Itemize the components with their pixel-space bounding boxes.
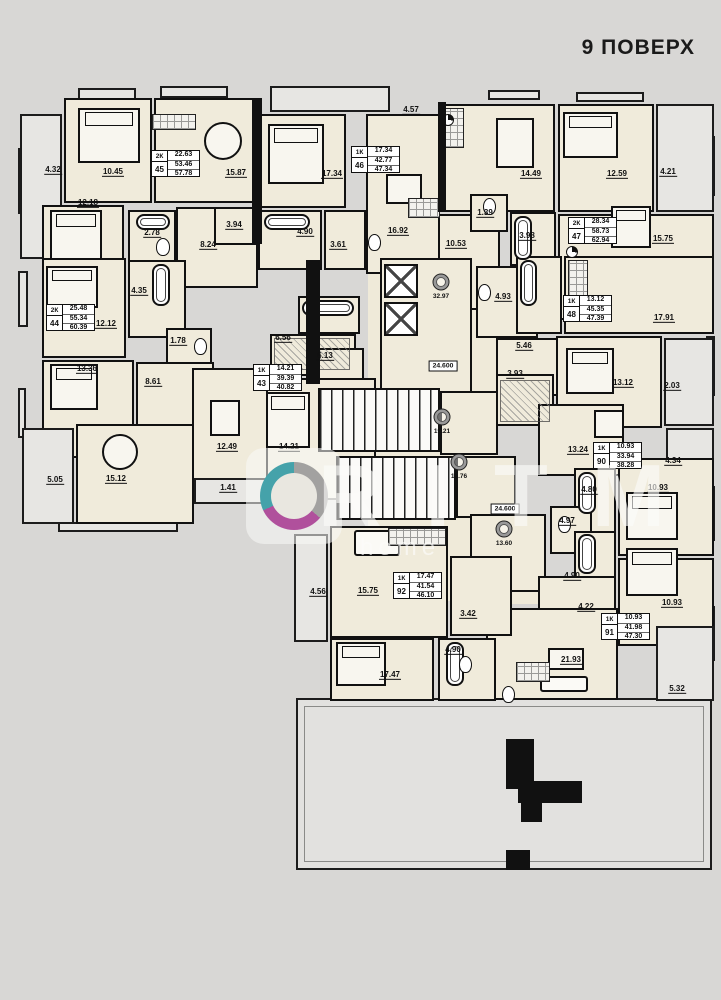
dimension-label: 17.91 [653, 314, 675, 323]
wc-icon [156, 238, 170, 256]
apartment-area-value: 38.28 [610, 462, 641, 471]
dimension-label: 4.22 [577, 603, 595, 612]
apartment-area-value: 53.46 [168, 161, 199, 171]
apartment-area-value: 13.12 [580, 296, 611, 306]
wc-icon [194, 338, 207, 355]
dimension-label: 4.97 [558, 517, 576, 526]
apartment-number: 47 [569, 229, 584, 243]
apartment-area-value: 10.93 [610, 443, 641, 453]
dimension-label: 8.24 [199, 241, 217, 250]
dimension-label: 2.78 [143, 229, 161, 238]
wc-icon [502, 686, 515, 703]
bed-icon [268, 124, 324, 184]
counter-icon [388, 528, 446, 546]
apartment-info-table-91: 1К9110.9341.9847.30 [601, 613, 650, 640]
dimension-label: 3.94 [225, 221, 243, 230]
wc-icon [368, 234, 381, 251]
wc-icon [459, 656, 472, 673]
apartment-area-value: 42.77 [368, 157, 399, 167]
dimension-label: 4.90 [444, 646, 462, 655]
dimension-label: 2.03 [663, 382, 681, 391]
apartment-area-value: 45.35 [580, 306, 611, 316]
apartment-area-value: 17.47 [410, 573, 441, 583]
table-round-icon [102, 434, 138, 470]
apartment-area-value: 60.39 [63, 324, 94, 333]
bed-icon [566, 348, 614, 394]
hatch-icon [500, 380, 550, 422]
apartment-info-table-92: 1К9217.4741.5446.10 [393, 572, 442, 599]
core-area-value: 13.60 [496, 540, 512, 547]
core-area-circle-icon [433, 274, 450, 291]
apartment-area-value: 40.82 [270, 384, 301, 393]
dimension-label: 15.12 [105, 475, 127, 484]
bed-icon [46, 266, 98, 308]
dimension-label: 6.56 [274, 334, 292, 343]
dimension-label: 21.93 [560, 656, 582, 665]
dimension-label: 12.49 [216, 443, 238, 452]
apartment-type: 1К [394, 573, 409, 584]
lift-icon [384, 302, 418, 336]
dimension-label: 3.98 [518, 232, 536, 241]
apartment-type: 1К [352, 147, 367, 158]
counter-icon [516, 662, 550, 682]
dimension-label: 4.32 [44, 166, 62, 175]
dimension-label: 1.41 [219, 484, 237, 493]
apartment-number: 48 [564, 307, 579, 321]
apartment-area-value: 58.73 [585, 228, 616, 238]
bed-icon [626, 548, 678, 596]
dimension-label: 4.80 [580, 486, 598, 495]
dimension-label: 15.87 [225, 169, 247, 178]
dimension-label: 13.24 [567, 446, 589, 455]
dimension-label: 14.21 [278, 443, 300, 452]
page-title: 9 ПОВЕРХ [582, 36, 695, 60]
apt47-balcony [656, 104, 714, 212]
core-area-circle-icon [434, 409, 451, 426]
floor-plan-page: { "title": "9 ПОВЕРХ", "watermark": { "b… [0, 0, 721, 1000]
apartment-info-table-45: 2К4522.6353.4657.78 [151, 150, 200, 177]
core-area-value: 19.21 [434, 428, 450, 435]
core-total-box: 24.600 [491, 504, 520, 515]
apartment-info-table-46: 1К4617.3442.7747.34 [351, 146, 400, 173]
apt46-balcony [270, 86, 390, 112]
dimension-label: 12.59 [606, 170, 628, 179]
apartment-area-value: 47.39 [580, 315, 611, 324]
apartment-info-table-90: 1К9010.9333.9438.28 [593, 442, 642, 469]
bed-icon [50, 210, 102, 260]
core-area-circle-icon [496, 521, 513, 538]
apartment-area-value: 28.34 [585, 218, 616, 228]
dimension-label: 13.12 [612, 379, 634, 388]
apartment-type: 2К [152, 151, 167, 162]
balcony-tab [18, 271, 28, 327]
dimension-label: 1.39 [476, 209, 494, 218]
dimension-label: 12.18 [77, 199, 99, 208]
apartment-area-value: 14.21 [270, 365, 301, 375]
apartment-area-value: 62.94 [585, 237, 616, 246]
apt92-hall [450, 556, 512, 636]
apartment-area-value: 47.34 [368, 166, 399, 175]
dimension-label: 4.21 [659, 168, 677, 177]
apartment-type: 2К [47, 305, 62, 316]
dimension-label: 4.34 [664, 457, 682, 466]
apartment-area-value: 25.48 [63, 305, 94, 315]
wall-icon [438, 102, 446, 212]
bed-icon [611, 206, 651, 248]
apartment-type: 1К [602, 614, 617, 625]
core-area-value: 32.97 [433, 293, 449, 300]
apartment-type: 1К [594, 443, 609, 454]
lift-icon [384, 264, 418, 298]
dimension-label: 5.46 [515, 342, 533, 351]
dimension-label: 13.36 [76, 365, 98, 374]
apartment-area-value: 55.34 [63, 315, 94, 325]
table-rect-icon [496, 118, 534, 168]
counter-icon [152, 114, 196, 130]
apartment-number: 45 [152, 162, 167, 176]
wall-icon [506, 850, 530, 870]
dimension-label: 17.47 [379, 671, 401, 680]
dimension-label: 4.35 [130, 287, 148, 296]
apartment-number: 90 [594, 454, 609, 468]
apartment-area-value: 22.63 [168, 151, 199, 161]
wall-icon [521, 803, 542, 822]
dimension-label: 3.93 [506, 370, 524, 379]
apartment-area-value: 47.30 [618, 633, 649, 642]
apartment-info-table-44: 2К4425.4855.3460.39 [46, 304, 95, 331]
apartment-area-value: 39.39 [270, 375, 301, 385]
apartment-info-table-47: 2К4728.3458.7362.94 [568, 217, 617, 244]
apartment-number: 91 [602, 625, 617, 639]
apartment-number: 46 [352, 158, 367, 172]
dimension-label: 17.34 [321, 170, 343, 179]
bed-icon [626, 492, 678, 540]
dimension-label: 3.61 [329, 241, 347, 250]
apartment-area-value: 33.94 [610, 453, 641, 463]
apartment-number: 43 [254, 376, 269, 390]
dimension-label: 15.75 [357, 587, 379, 596]
apartment-info-table-48: 1К4813.1245.3547.39 [563, 295, 612, 322]
bed-icon [78, 108, 140, 163]
dimension-label: 15.75 [652, 235, 674, 244]
dimension-label: 12.12 [95, 320, 117, 329]
dimension-label: 10.53 [445, 240, 467, 249]
vent-icon [566, 246, 578, 258]
core-area-circle-icon [451, 454, 468, 471]
apartment-area-value: 46.10 [410, 592, 441, 601]
counter-icon [568, 260, 588, 300]
dimension-label: 6.13 [316, 352, 334, 361]
apartment-area-value: 10.93 [618, 614, 649, 624]
dimension-label: 4.57 [402, 106, 420, 115]
balcony-tab [488, 90, 540, 100]
dimension-label: 5.05 [46, 476, 64, 485]
dimension-label: 8.61 [144, 378, 162, 387]
apartment-area-value: 17.34 [368, 147, 399, 157]
wall-icon [518, 781, 582, 803]
tub-icon [578, 534, 596, 574]
dimension-label: 3.42 [459, 610, 477, 619]
tub-icon [152, 264, 170, 306]
floor-plan: 4.3210.4515.8712.182.783.948.244.5717.34… [18, 86, 716, 886]
dimension-label: 1.78 [169, 337, 187, 346]
tub-icon [520, 260, 537, 306]
apartment-type: 1К [254, 365, 269, 376]
apartment-number: 44 [47, 316, 62, 330]
apartment-number: 92 [394, 584, 409, 598]
bed-icon [563, 112, 618, 158]
wc-icon [478, 284, 491, 301]
table-round-icon [204, 122, 242, 160]
apartment-area-value: 41.98 [618, 624, 649, 634]
dimension-label: 4.90 [563, 572, 581, 581]
apartment-area-value: 41.54 [410, 583, 441, 593]
apt44-kitchen [76, 424, 194, 524]
apartment-info-table-43: 1К4314.2139.3940.82 [253, 364, 302, 391]
dimension-label: 4.90 [296, 228, 314, 237]
wall-icon [306, 260, 320, 384]
dimension-label: 4.56 [309, 588, 327, 597]
stairs-icon [336, 456, 456, 520]
stairs-icon [318, 388, 440, 452]
wall-icon [252, 98, 262, 244]
roof-terrace [296, 698, 712, 870]
apartment-type: 1К [564, 296, 579, 307]
dimension-label: 10.93 [661, 599, 683, 608]
dimension-label: 10.93 [647, 484, 669, 493]
apartment-type: 2К [569, 218, 584, 229]
dimension-label: 5.32 [668, 685, 686, 694]
dimension-label: 10.45 [102, 168, 124, 177]
dimension-label: 16.92 [387, 227, 409, 236]
balcony-tab [160, 86, 228, 98]
counter-icon [408, 198, 440, 218]
apartment-area-value: 57.78 [168, 170, 199, 179]
dimension-label: 14.49 [520, 170, 542, 179]
core-total-box: 24.600 [429, 361, 458, 372]
core-area-value: 18.76 [451, 473, 467, 480]
core-corridor-mid [440, 391, 498, 455]
dimension-label: 4.93 [494, 293, 512, 302]
table-rect-icon [210, 400, 240, 436]
table-rect-icon [594, 410, 624, 438]
bed-icon [266, 392, 310, 448]
balcony-tab [576, 92, 644, 102]
